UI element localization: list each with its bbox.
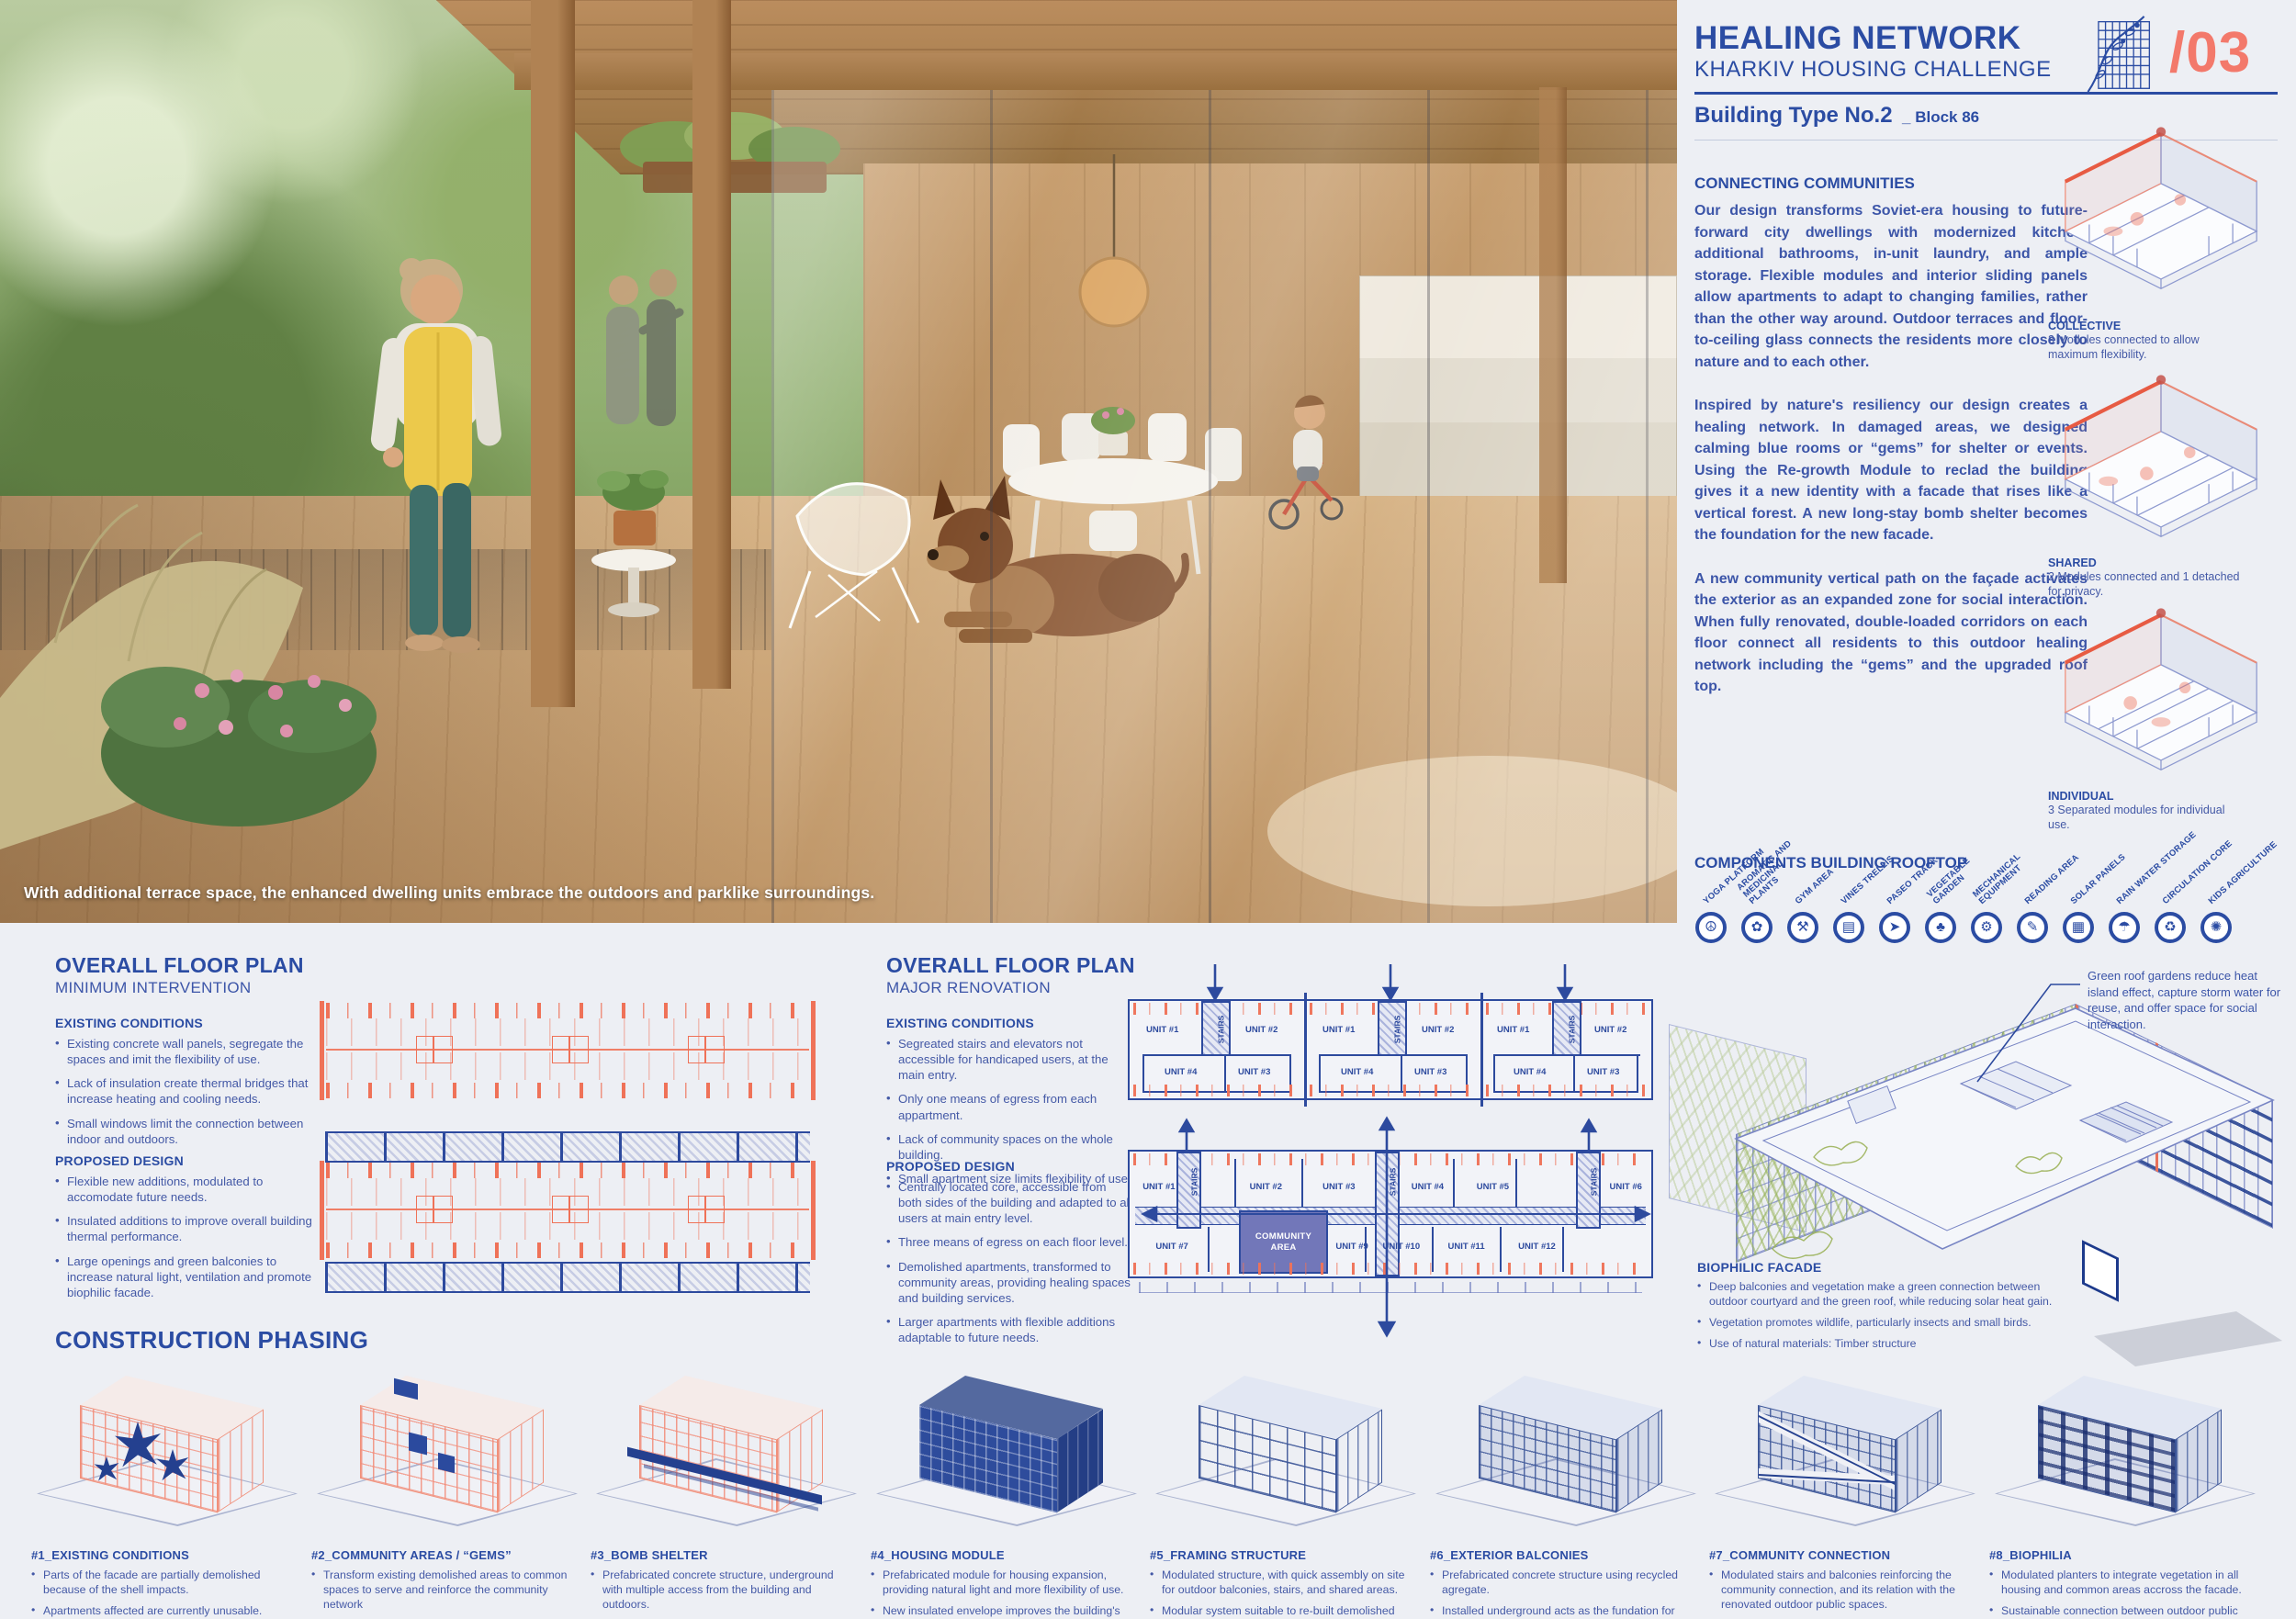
fp-major-title: OVERALL FLOOR PLAN	[886, 953, 1135, 978]
phase-4-diagram	[869, 1357, 1144, 1527]
fp-major-subtitle: MAJOR RENOVATION	[886, 979, 1051, 997]
phase-5-diagram	[1148, 1357, 1424, 1527]
phase-7-caption: #7_COMMUNITY CONNECTION Modulated stairs…	[1709, 1548, 1972, 1619]
paragraph: Inspired by nature's resiliency our desi…	[1694, 395, 2088, 546]
competition-board: With additional terrace space, the enhan…	[0, 0, 2296, 1619]
biophilic-list: Deep balconies and vegetation make a gre…	[1697, 1280, 2081, 1358]
vines-trellis-icon: ▤ VINES TRELLIS	[1833, 912, 1864, 943]
plan-min-existing-drawing	[320, 1001, 816, 1100]
kids-agriculture-icon: ✺ KIDS AGRICULTURE	[2200, 912, 2232, 943]
phase-4-caption: #4_HOUSING MODULE Prefabricated module f…	[871, 1548, 1133, 1619]
paseo-track-icon: ➤ PASEO TRACK	[1879, 912, 1910, 943]
biophilic-heading: BIOPHILIC FACADE	[1697, 1260, 1821, 1275]
paragraph: Our design transforms Soviet-era housing…	[1694, 200, 2088, 373]
connecting-text: Our design transforms Soviet-era housing…	[1694, 200, 2088, 720]
solar-panels-icon: ▦ SOLAR PANELS	[2063, 912, 2094, 943]
module-name: INDIVIDUAL	[2048, 790, 2278, 803]
vegetable-garden-icon: ♣ VEGETABLE GARDEN	[1925, 912, 1956, 943]
board-title: HEALING NETWORK	[1694, 20, 2021, 57]
phase-2-diagram	[310, 1357, 585, 1527]
fp-min-existing-list: Existing concrete wall panels, segregate…	[55, 1036, 314, 1155]
phase-7-diagram	[1707, 1357, 1983, 1527]
board-subtitle: KHARKIV HOUSING CHALLENGE	[1694, 57, 2052, 83]
background-people	[606, 269, 680, 426]
module-name: COLLECTIVE	[2048, 320, 2278, 332]
reading-area-icon: ✎ READING AREA	[2017, 912, 2048, 943]
side-table	[591, 470, 676, 617]
flower-planter	[101, 667, 377, 826]
green-roof-note: Green roof gardens reduce heat island ef…	[2088, 968, 2291, 1032]
wood-post	[531, 0, 575, 707]
yoga-platform-icon: ☮ YOGA PLATFORM	[1695, 912, 1727, 943]
wood-beam	[514, 53, 1677, 90]
phase-6-diagram	[1428, 1357, 1704, 1527]
paragraph: A new community vertical path on the faç…	[1694, 568, 2088, 698]
phase-8-caption: #8_BIOPHILIA Modulated planters to integ…	[1989, 1548, 2252, 1619]
module-desc: 3 Separated modules for individual use.	[2048, 803, 2241, 833]
phase-5-caption: #5_FRAMING STRUCTURE Modulated structure…	[1150, 1548, 1412, 1619]
fp-min-proposed-heading: PROPOSED DESIGN	[55, 1153, 184, 1168]
phase-8-diagram	[1987, 1357, 2263, 1527]
collective-module-diagram	[2046, 108, 2276, 315]
phase-6-caption: #6_EXTERIOR BALCONIES Prefabricated conc…	[1430, 1548, 1693, 1619]
circulation-core-icon: ♻ CIRCULATION CORE	[2155, 912, 2186, 943]
circulation-arrows	[1116, 955, 1676, 1350]
woman-figure	[369, 258, 502, 653]
module-name: SHARED	[2048, 557, 2278, 569]
wood-post	[692, 0, 731, 689]
phase-3-diagram	[589, 1357, 864, 1527]
fp-min-title: OVERALL FLOOR PLAN	[55, 953, 304, 978]
photo-caption: With additional terrace space, the enhan…	[24, 883, 874, 903]
aromatic-plants-icon: ✿ AROMATIC AND MEDICINAL PLANTS	[1741, 912, 1773, 943]
fp-min-subtitle: MINIMUM INTERVENTION	[55, 979, 251, 997]
header-rule	[1694, 92, 2278, 95]
shared-module-diagram	[2046, 356, 2276, 563]
fp-major-proposed-list: Centrally located core, accessible from …	[886, 1179, 1132, 1354]
page-number: /03	[2169, 20, 2251, 85]
phasing-heading: CONSTRUCTION PHASING	[55, 1326, 368, 1355]
hero-render-photo: With additional terrace space, the enhan…	[0, 0, 1677, 923]
fp-min-existing-heading: EXISTING CONDITIONS	[55, 1016, 203, 1030]
fp-major-proposed-heading: PROPOSED DESIGN	[886, 1159, 1015, 1174]
wood-post	[1539, 87, 1567, 583]
plan-min-proposed-drawing	[320, 1131, 816, 1289]
mechanical-equipment-icon: ⚙ MECHANICAL EQUIPMENT	[1971, 912, 2002, 943]
grid-vine-logo-icon	[2077, 15, 2156, 94]
gym-area-icon: ⚒ GYM AREA	[1787, 912, 1818, 943]
individual-module-diagram	[2046, 590, 2276, 796]
building-type: Building Type No.2	[1694, 103, 1893, 128]
phase-1-diagram	[29, 1357, 305, 1527]
phase-3-caption: #3_BOMB SHELTER Prefabricated concrete s…	[591, 1548, 853, 1619]
block-label: _ Block 86	[1902, 108, 1979, 126]
fp-major-existing-heading: EXISTING CONDITIONS	[886, 1016, 1034, 1030]
rain-water-storage-icon: ☂ RAIN WATER STORAGE	[2109, 912, 2140, 943]
phase-1-caption: #1_EXISTING CONDITIONS Parts of the faca…	[31, 1548, 294, 1619]
connecting-heading: CONNECTING COMMUNITIES	[1694, 174, 1915, 193]
fp-min-proposed-list: Flexible new additions, modulated to acc…	[55, 1174, 314, 1309]
phase-2-caption: #2_COMMUNITY AREAS / “GEMS” Transform ex…	[311, 1548, 574, 1619]
